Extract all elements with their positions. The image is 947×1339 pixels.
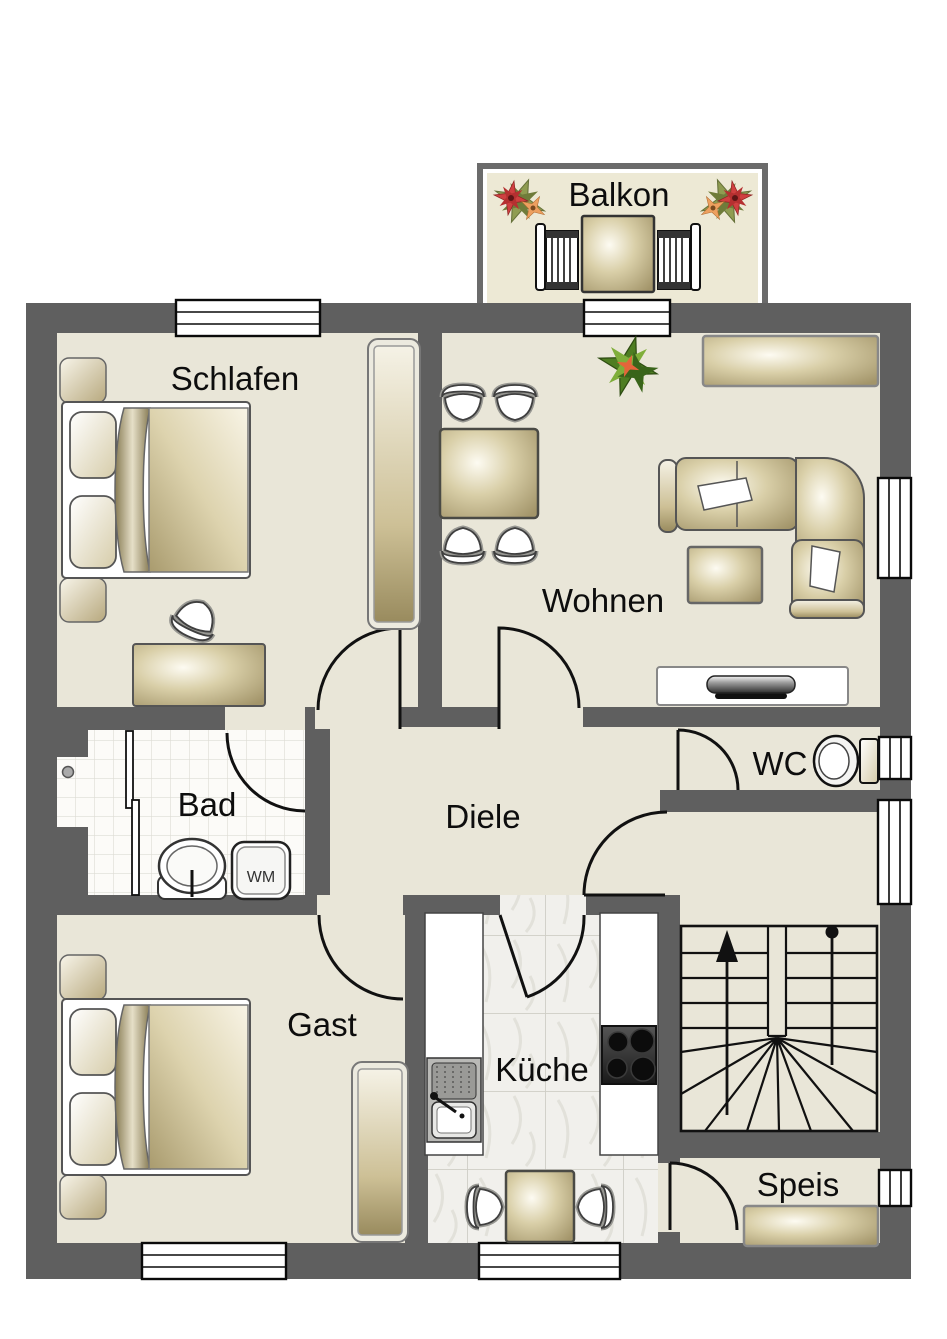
pantry-shelf-icon xyxy=(744,1206,878,1246)
window-icon-stair-hall xyxy=(878,800,911,904)
stair-hall-floor xyxy=(680,812,880,1132)
room-label-balkon: Balkon xyxy=(569,176,670,213)
room-label-speis: Speis xyxy=(757,1166,840,1203)
wardrobe-icon xyxy=(352,1062,408,1242)
stairs-start-dot-icon xyxy=(826,926,839,939)
kitchen-sink-icon xyxy=(427,1058,481,1142)
wardrobe-icon xyxy=(368,339,420,629)
window-icon-gast xyxy=(142,1243,286,1279)
tv-lowboard-icon xyxy=(657,667,848,705)
dresser-icon xyxy=(133,644,265,706)
bathroom-sink-icon xyxy=(158,839,226,899)
room-label-diele: Diele xyxy=(445,798,520,835)
tv-icon xyxy=(707,676,795,693)
balcony-chair-icon xyxy=(658,224,700,290)
window-icon-speis xyxy=(879,1170,911,1206)
kitchen-table-icon xyxy=(506,1171,574,1242)
room-label-gast: Gast xyxy=(287,1006,357,1043)
sideboard-icon xyxy=(703,336,878,386)
balcony-table-icon xyxy=(582,216,654,292)
shower-screen-icon xyxy=(126,731,133,808)
window-icon-balcony-door xyxy=(584,300,670,336)
stove-icon xyxy=(602,1026,656,1084)
room-label-schlafen: Schlafen xyxy=(171,360,299,397)
floor-plan: WM xyxy=(0,0,947,1339)
window-icon-wc xyxy=(879,737,911,779)
shower-screen-icon xyxy=(132,800,139,895)
window-icon-schlafen xyxy=(176,300,320,336)
fixture-knob-icon xyxy=(63,767,74,778)
room-label-wohnen: Wohnen xyxy=(542,582,664,619)
window-icon-wohnen xyxy=(878,478,911,578)
room-label-bad: Bad xyxy=(178,786,237,823)
dining-table-icon xyxy=(440,429,538,518)
toilet-icon xyxy=(814,736,878,786)
balcony-chair-icon xyxy=(536,224,578,290)
coffee-table-icon xyxy=(688,547,762,603)
washing-machine-icon: WM xyxy=(232,842,290,899)
room-label-wc: WC xyxy=(753,745,808,782)
room-label-kueche: Küche xyxy=(495,1051,589,1088)
washing-machine-label: WM xyxy=(247,869,275,886)
window-icon-kueche xyxy=(479,1243,620,1279)
